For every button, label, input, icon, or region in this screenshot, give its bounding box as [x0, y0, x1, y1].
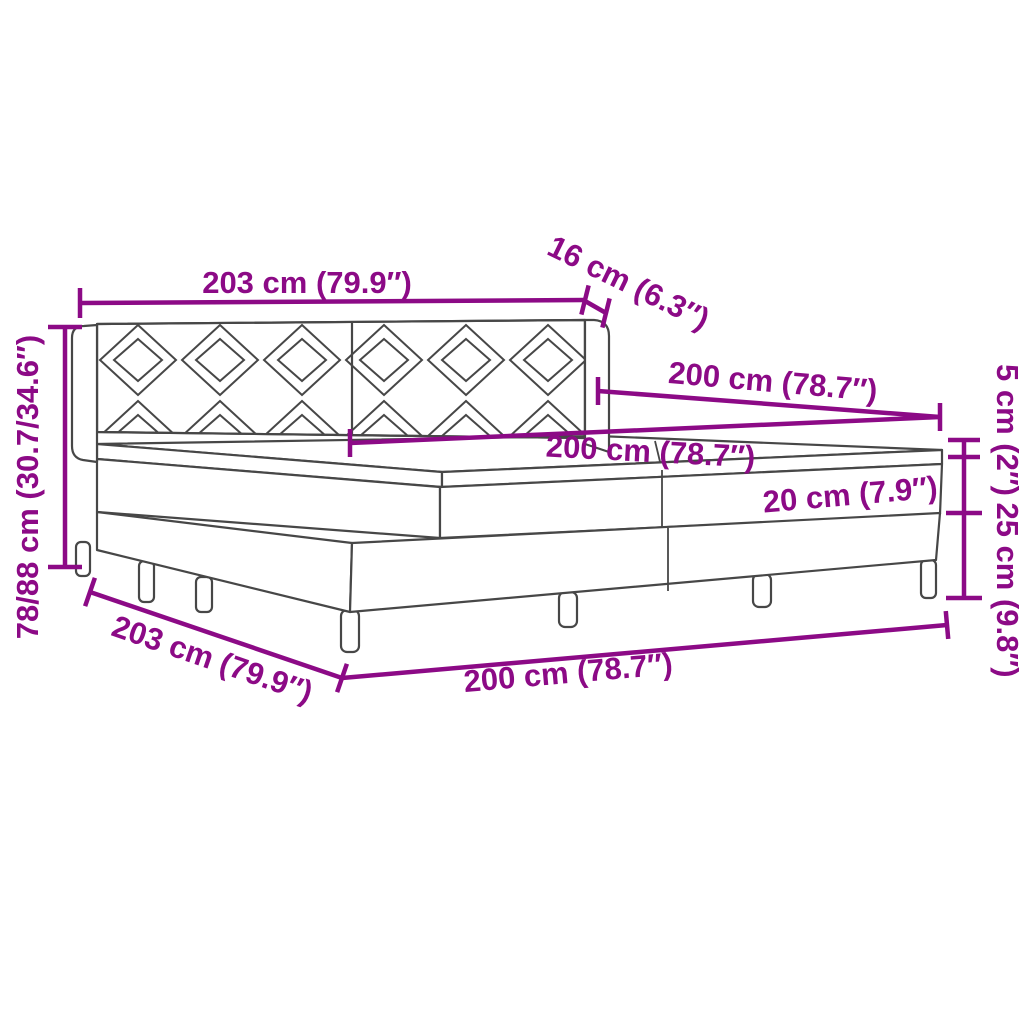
leg-back-left [76, 542, 90, 576]
leg-right-1 [559, 592, 577, 627]
headboard-face [97, 320, 585, 438]
label-base-height: 25 cm (9.8″) [990, 502, 1024, 677]
leg-left-2 [196, 577, 212, 612]
leg-left-1 [139, 561, 154, 602]
headboard-left-wing [72, 325, 97, 462]
label-headboard-width: 203 cm (79.9″) [202, 265, 412, 300]
label-base-length-bottom: 200 cm (78.7″) [462, 646, 674, 699]
dim-line-height-stack [946, 440, 982, 598]
leg-front-corner [341, 610, 359, 652]
leg-back-right [921, 560, 936, 598]
bed-diagram-canvas: 203 cm (79.9″) 16 cm (6.3″) 200 cm (78.7… [0, 0, 1024, 1024]
label-total-height: 78/88 cm (30.7/34.6″) [10, 335, 45, 639]
label-topper-height: 5 cm (2″) [990, 364, 1024, 496]
dimension-diagram: 203 cm (79.9″) 16 cm (6.3″) 200 cm (78.7… [0, 0, 1024, 1024]
leg-right-2 [753, 574, 771, 607]
